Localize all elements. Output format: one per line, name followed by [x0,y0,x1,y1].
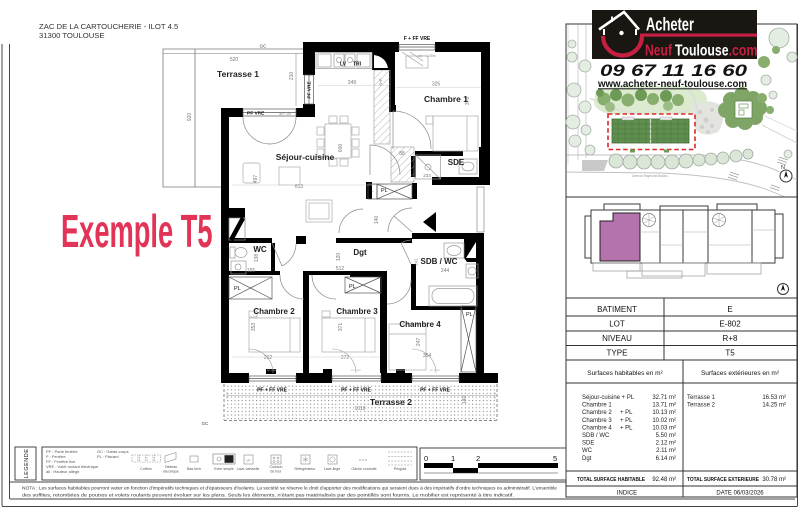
svg-text:31300 TOULOUSE: 31300 TOULOUSE [39,31,105,40]
svg-text:497: 497 [253,175,259,184]
svg-text:INDICE: INDICE [617,491,637,497]
svg-text:920: 920 [187,113,193,122]
svg-text:PF + FF VRE: PF + FF VRE [420,388,451,394]
svg-text:Lave-vaisselle: Lave-vaisselle [237,467,260,471]
svg-text:1: 1 [451,454,455,463]
svg-text:Dgt: Dgt [353,248,367,257]
svg-text:92.48 m²: 92.48 m² [652,477,676,483]
svg-text:LOT: LOT [609,320,625,329]
svg-text:~: ~ [371,189,374,194]
svg-text:16.53 m²: 16.53 m² [762,395,786,401]
svg-text:Terrasse 2: Terrasse 2 [687,403,716,409]
svg-text:NOTA : Les surfaces habitables: NOTA : Les surfaces habitables pourront … [22,486,557,492]
svg-text:S+F: S+F [378,78,383,86]
svg-text:ZAC DE LA CARTOUCHERIE - ILOT: ZAC DE LA CARTOUCHERIE - ILOT 4.5 [39,22,178,31]
svg-text:353: 353 [251,323,257,332]
svg-text:PL: PL [466,312,473,318]
svg-text:272: 272 [341,355,350,361]
svg-text:5: 5 [553,454,557,463]
svg-text:Terrasse 1: Terrasse 1 [687,395,716,401]
svg-text:de four: de four [270,470,282,474]
svg-text:Bas tech: Bas tech [187,467,201,471]
svg-text:155: 155 [247,268,256,274]
svg-text:354: 354 [423,353,432,359]
svg-text:520: 520 [230,57,239,63]
svg-text:PF VRE: PF VRE [307,81,313,99]
svg-text:10.02 m²: 10.02 m² [652,418,676,424]
svg-text:LEGENDE: LEGENDE [24,449,30,479]
svg-text:SDE: SDE [582,441,594,447]
svg-text:+ PL: + PL [620,410,633,416]
svg-text:.com: .com [729,43,758,60]
svg-text:Lave-linge: Lave-linge [324,467,341,471]
svg-text:PF + FF VRE: PF + FF VRE [341,388,372,394]
svg-text:E-802: E-802 [719,320,741,329]
svg-text:Gâche conduite: Gâche conduite [351,467,376,471]
svg-text:244: 244 [441,268,450,274]
svg-text:233: 233 [423,173,431,178]
svg-text:140: 140 [462,396,468,405]
svg-text:09 67 11 16 60: 09 67 11 16 60 [600,62,748,80]
svg-text:Terrasse 2: Terrasse 2 [370,397,412,407]
svg-text:140: 140 [374,216,380,225]
svg-text:2.11 m²: 2.11 m² [656,448,676,454]
svg-text:Pergola: Pergola [394,467,406,471]
svg-text:Séjour-cuisine + PL: Séjour-cuisine + PL [582,395,635,401]
svg-text:alt + 1m: alt + 1m [279,112,291,116]
svg-text:Cuisson: Cuisson [270,465,283,469]
svg-text:+ PL: + PL [620,425,633,431]
svg-text:DATE 06/03/2026: DATE 06/03/2026 [716,491,764,497]
svg-text:32.71 m²: 32.71 m² [652,395,676,401]
svg-text:F + FF VRE: F + FF VRE [404,36,431,42]
svg-text:PF + FF VRE: PF + FF VRE [257,388,288,394]
svg-text:600: 600 [338,144,344,153]
svg-text:N: N [781,165,785,171]
svg-text:Réfrigérateur: Réfrigérateur [295,467,317,471]
svg-text:Tableau: Tableau [165,465,178,469]
svg-text:5.50 m²: 5.50 m² [656,433,676,439]
svg-text:88: 88 [399,151,405,157]
svg-text:Chambre 4: Chambre 4 [582,425,612,431]
svg-text:Evier simple: Evier simple [214,467,234,471]
svg-text:des soffites, retombées de pou: des soffites, retombées de poutres et vo… [22,493,514,499]
svg-text:GC: GC [260,44,268,49]
svg-text:Chambre 3: Chambre 3 [336,307,378,316]
svg-text:T5: T5 [725,349,735,358]
svg-text:30.78 m²: 30.78 m² [762,477,786,483]
svg-text:2.12 m²: 2.12 m² [656,441,676,447]
svg-text:TYPE: TYPE [607,349,628,358]
svg-text:BATIMENT: BATIMENT [597,305,637,314]
svg-text:Chambre 3: Chambre 3 [582,418,612,424]
svg-text:Terrasse 1: Terrasse 1 [217,69,259,79]
svg-text:249: 249 [348,80,357,86]
svg-text:Dgt: Dgt [582,456,592,462]
svg-text:Chambre 4: Chambre 4 [399,320,441,329]
svg-text:SDB / WC: SDB / WC [421,257,458,266]
svg-text:PL : Placard: PL : Placard [97,454,119,459]
svg-text:Coffres: Coffres [140,467,152,471]
svg-text:+ PL: + PL [620,418,633,424]
svg-text:Exemple T5: Exemple T5 [61,207,213,258]
svg-text:WC: WC [582,448,593,454]
svg-text:Neuf: Neuf [645,43,673,60]
svg-text:13.71 m²: 13.71 m² [652,403,676,409]
svg-text:241: 241 [414,258,419,266]
svg-text:Surfaces extérieures en m²: Surfaces extérieures en m² [701,370,780,377]
svg-text:120: 120 [336,253,342,262]
svg-text:PL: PL [381,188,388,194]
svg-text:Chambre 2: Chambre 2 [253,307,295,316]
svg-text:512: 512 [336,266,345,272]
svg-text:6.14 m²: 6.14 m² [656,456,676,462]
svg-text:210: 210 [289,72,295,81]
svg-text:SDB / WC: SDB / WC [582,433,610,439]
svg-text:SDE: SDE [448,158,465,167]
svg-text:2: 2 [476,454,480,463]
svg-text:325: 325 [432,82,441,88]
svg-text:10.13 m²: 10.13 m² [652,410,676,416]
svg-text:Avenue Raymond Badiou: Avenue Raymond Badiou [632,174,668,178]
svg-text:PF VRE: PF VRE [247,111,265,117]
svg-text:TOTAL SURFACE HABITABLE: TOTAL SURFACE HABITABLE [577,477,645,483]
svg-text:PL: PL [234,286,241,292]
svg-text:Toulouse: Toulouse [675,43,729,60]
svg-text:NIVEAU: NIVEAU [602,334,632,343]
svg-text:WC: WC [253,245,267,254]
svg-text:262: 262 [264,355,273,361]
svg-text:0: 0 [424,454,428,463]
svg-text:TOTAL SURFACE EXTERIEURE: TOTAL SURFACE EXTERIEURE [687,477,759,483]
svg-text:Chambre 2: Chambre 2 [582,410,612,416]
svg-text:électrique: électrique [163,470,179,474]
svg-text:14.25 m²: 14.25 m² [762,403,786,409]
svg-text:138: 138 [254,254,260,263]
svg-text:all : Hauteur allège: all : Hauteur allège [46,469,80,474]
svg-text:Surfaces habitables en m²: Surfaces habitables en m² [587,370,663,377]
svg-text:371: 371 [338,323,344,332]
svg-text:E: E [727,305,732,314]
svg-text:GC: GC [202,421,210,426]
svg-text:Séjour-cuisine: Séjour-cuisine [276,152,335,162]
svg-text:PL: PL [349,284,356,290]
svg-text:10.03 m²: 10.03 m² [652,425,676,431]
svg-text:al + fen: al + fen [267,368,277,372]
svg-text:TRI: TRI [353,62,362,68]
svg-text:al + fen: al + fen [430,368,440,372]
svg-text:Acheter: Acheter [646,15,694,35]
svg-text:1019: 1019 [354,406,365,412]
svg-text:R+8: R+8 [723,334,738,343]
svg-text:247: 247 [416,338,422,347]
svg-text:Chambre 1: Chambre 1 [582,403,612,409]
svg-text:Chambre 1: Chambre 1 [424,94,468,104]
svg-text:LV: LV [340,62,347,68]
